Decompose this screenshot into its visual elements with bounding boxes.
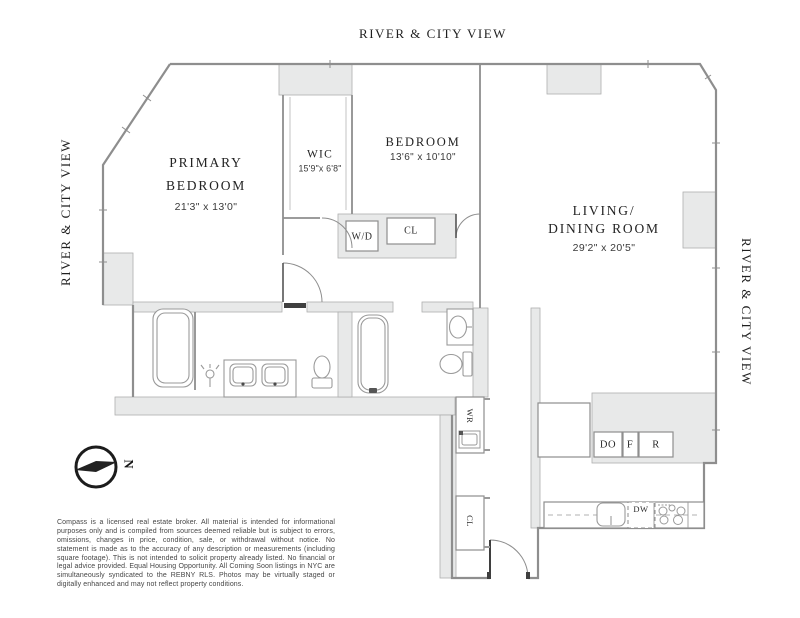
room-label-primary-bedroom: PRIMARY BEDROOM 21'3" x 13'0" xyxy=(166,151,246,213)
room-name-line: WIC xyxy=(298,149,341,162)
closet-entry-label: CL xyxy=(465,515,475,527)
room-label-living-dining: LIVING/ DINING ROOM 29'2" x 20'5" xyxy=(548,202,660,254)
closet-door-jambs xyxy=(484,399,490,547)
kitchen-counter xyxy=(544,502,704,528)
room-dimensions: 15'9"x 6'8" xyxy=(298,164,341,174)
bedroom-door-arc xyxy=(456,214,480,238)
double-vanity-icon xyxy=(224,360,296,397)
primary-bathroom xyxy=(153,309,332,397)
closet-boxes xyxy=(346,218,673,550)
bathtub-icon xyxy=(153,309,193,387)
room-name-line: BEDROOM xyxy=(166,174,246,197)
room-name-line: BEDROOM xyxy=(385,135,460,149)
view-label-right: RIVER & CITY VIEW xyxy=(738,238,754,386)
bathtub-icon xyxy=(358,315,388,393)
room-name-line: DINING ROOM xyxy=(548,220,660,238)
floorplan-page: RIVER & CITY VIEW RIVER & CITY VIEW RIVE… xyxy=(0,0,800,618)
room-label-wic: WIC 15'9"x 6'8" xyxy=(298,149,341,174)
double-oven-label: DO xyxy=(600,440,616,451)
compass-icon xyxy=(75,447,117,487)
primary-bedroom-door-arc xyxy=(283,263,322,302)
broker-disclaimer-text: Compass is a licensed real estate broker… xyxy=(57,519,335,590)
washer-dryer-label: W/D xyxy=(352,232,373,243)
dishwasher-label: DW xyxy=(632,504,649,514)
refrigerator-label: R xyxy=(652,440,660,451)
view-label-left: RIVER & CITY VIEW xyxy=(58,138,74,286)
freezer-label: F xyxy=(627,440,633,451)
wine-ref-label: WR xyxy=(465,409,475,424)
second-bathroom xyxy=(358,309,473,393)
room-name-line: LIVING/ xyxy=(548,202,660,220)
room-dimensions: 13'6" x 10'10" xyxy=(385,152,460,163)
bathroom-door-leaf xyxy=(284,303,306,308)
toilet-icon xyxy=(312,356,332,388)
view-label-top: RIVER & CITY VIEW xyxy=(359,26,507,42)
closet-top-label: CL xyxy=(404,226,418,237)
toilet-icon xyxy=(440,352,472,376)
room-name-line: PRIMARY xyxy=(166,151,246,174)
sink-icon xyxy=(447,309,473,345)
entry-door-arc xyxy=(487,540,530,579)
shower-head-icon xyxy=(201,364,219,387)
wine-ref-appliance-icon xyxy=(459,431,480,448)
room-label-bedroom: BEDROOM 13'6" x 10'10" xyxy=(385,135,460,163)
room-dimensions: 21'3" x 13'0" xyxy=(166,201,246,213)
kitchen-sink-icon xyxy=(597,503,625,526)
room-dimensions: 29'2" x 20'5" xyxy=(548,242,660,254)
compass-north-label: N xyxy=(121,459,136,468)
pantry-box xyxy=(538,403,590,457)
